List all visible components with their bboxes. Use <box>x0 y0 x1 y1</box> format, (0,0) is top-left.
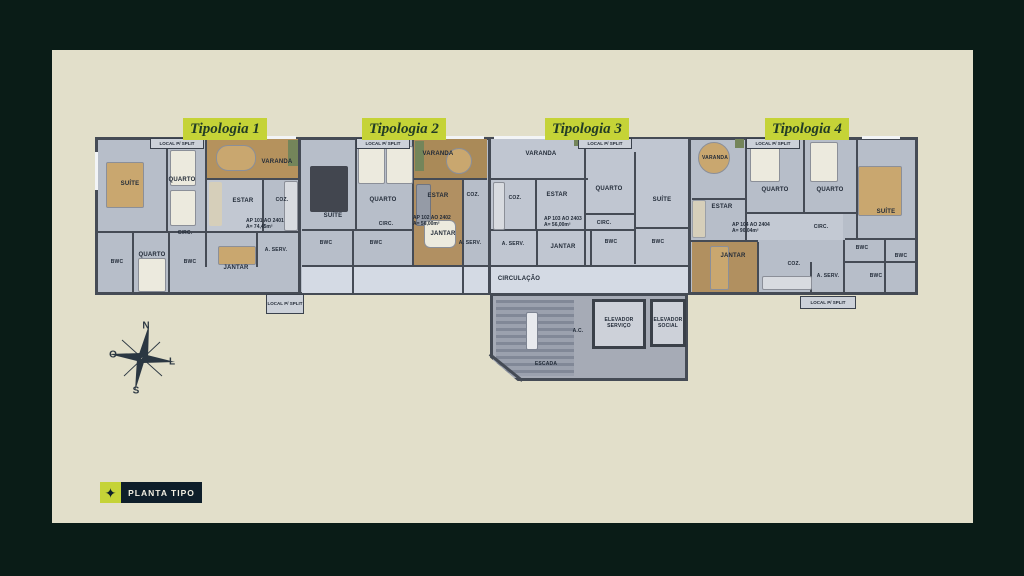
room-label-coz-t1: COZ. <box>276 197 289 203</box>
label-elevador-servico: ELEVADOR SERVIÇO <box>597 317 641 329</box>
wall <box>586 213 634 215</box>
wall <box>536 231 538 267</box>
furniture-bed <box>810 142 838 182</box>
room-label-bwc-t1b: BWC <box>184 259 197 265</box>
room-label-jantar-t1: JANTAR <box>223 265 248 271</box>
wall <box>843 240 845 294</box>
wall <box>168 233 170 293</box>
wall <box>757 242 759 295</box>
room-label-estar-t3: ESTAR <box>547 192 568 198</box>
room-label-varanda-t3: VARANDA <box>526 151 557 157</box>
room-label-jantar-t4: JANTAR <box>720 253 745 259</box>
room-label-quarto-t4b: QUARTO <box>816 187 843 193</box>
room-label-coz-t2: COZ. <box>467 192 480 198</box>
room-label-suite-t1: SUÍTE <box>121 181 140 187</box>
furniture-counter <box>284 181 298 231</box>
label-circulacao: CIRCULAÇÃO <box>498 276 540 282</box>
wall <box>636 227 690 229</box>
wall <box>634 152 636 264</box>
room-label-suite-t2: SUÍTE <box>324 213 343 219</box>
label-elevador-social: ELEVADOR SOCIAL <box>646 317 690 329</box>
wall <box>132 233 134 293</box>
wall <box>491 178 588 180</box>
room-label-aserv-t2: A. SERV. <box>459 240 481 246</box>
typology-2-label: Tipologia 2 <box>362 118 446 140</box>
compass-east: L <box>169 357 175 368</box>
room-label-estar-t4: ESTAR <box>712 204 733 210</box>
room-label-circ-t3: CIRC. <box>597 220 612 226</box>
badge-bar: PLANTA TIPO <box>121 482 202 503</box>
room-label-estar-t1: ESTAR <box>233 198 254 204</box>
furniture-bed <box>358 146 385 184</box>
compass-north: N <box>142 321 149 332</box>
corridor-wall <box>302 265 690 267</box>
furniture-bed <box>170 190 196 226</box>
split-box-t4-bottom: LOCAL P/ SPLIT <box>800 296 856 309</box>
room-label-quarto-t2: QUARTO <box>369 197 396 203</box>
room-label-varanda-t1: VARANDA <box>262 159 293 165</box>
wall <box>845 261 918 263</box>
window <box>95 152 98 190</box>
room-label-bwc-t4c: BWC <box>870 273 883 279</box>
room-label-bwc-t3b: BWC <box>652 239 665 245</box>
room-label-aserv-t4: A. SERV. <box>817 273 839 279</box>
unit-divider <box>688 137 691 295</box>
furniture-counter <box>762 276 812 290</box>
wall <box>584 139 586 265</box>
planter <box>735 139 744 148</box>
room-label-bwc-t3a: BWC <box>605 239 618 245</box>
room-label-varanda-t4: VARANDA <box>702 155 728 161</box>
wall <box>352 231 354 294</box>
wall <box>166 140 168 232</box>
wall <box>355 140 357 231</box>
wall <box>803 140 805 214</box>
wall <box>590 231 592 267</box>
split-box-t1-bottom: LOCAL P/ SPLIT <box>266 294 304 314</box>
apartment-area-t3: A= 56,00m² <box>544 222 582 228</box>
typology-1-label: Tipologia 1 <box>183 118 267 140</box>
room-label-quarto-t4a: QUARTO <box>761 187 788 193</box>
apartment-area-t2: A= 56,00m² <box>413 221 451 227</box>
room-label-coz-t4: COZ. <box>788 261 801 267</box>
furniture-counter <box>493 182 505 230</box>
wall <box>205 178 300 180</box>
room-label-bwc-t1a: BWC <box>111 259 124 265</box>
room-label-aserv-t3: A. SERV. <box>502 241 524 247</box>
room-label-suite-t4: SUÍTE <box>877 209 896 215</box>
room-label-circ-t1: CIRC. <box>178 230 193 236</box>
furniture-table <box>218 246 256 265</box>
wall <box>535 180 537 231</box>
compass-south: S <box>133 386 140 397</box>
furniture-bed <box>138 258 166 292</box>
room-label-bwc-t4b: BWC <box>895 253 908 259</box>
furniture-bed <box>386 146 413 184</box>
wall <box>691 240 758 242</box>
wall <box>414 178 487 180</box>
room-label-quarto-t1b: QUARTO <box>138 252 165 258</box>
unit-divider <box>298 137 301 295</box>
wall <box>491 229 634 231</box>
room-label-suite-t3: SUÍTE <box>653 197 672 203</box>
wall <box>747 212 857 214</box>
room-label-bwc-t2a: BWC <box>320 240 333 246</box>
wall <box>256 233 258 267</box>
room-label-bwc-t2b: BWC <box>370 240 383 246</box>
stair-rail <box>526 312 538 350</box>
wall <box>302 229 412 231</box>
wall <box>845 238 918 240</box>
label-escada: ESCADA <box>535 361 557 367</box>
room-label-quarto-t3: QUARTO <box>595 186 622 192</box>
apartment-tag-t3: AP 103 AO 2403 A= 56,00m² <box>544 216 582 229</box>
apartment-area-t1: A= 74,45m² <box>246 224 284 230</box>
room-label-jantar-t3: JANTAR <box>550 244 575 250</box>
compass-west: O <box>109 350 117 361</box>
typology-3-label: Tipologia 3 <box>545 118 629 140</box>
apartment-tag-t2: AP 102 AO 2402 A= 56,00m² <box>413 215 451 228</box>
furniture-sofa <box>209 182 222 226</box>
room-label-jantar-t2: JANTAR <box>430 231 455 237</box>
furniture-sofa <box>692 200 706 238</box>
typology-4-label: Tipologia 4 <box>765 118 849 140</box>
slide: Tipologia 1 Tipologia 2 Tipologia 3 Tipo… <box>0 0 1024 576</box>
wall <box>207 231 300 233</box>
wall <box>205 139 207 267</box>
apartment-tag-t1: AP 101 AO 2401 A= 74,45m² <box>246 218 284 231</box>
room-label-circ-t4: CIRC. <box>814 224 829 230</box>
window <box>862 136 900 139</box>
badge-label: PLANTA TIPO <box>128 488 195 498</box>
apartment-area-t4: A= 90,04m² <box>732 228 770 234</box>
apartment-tag-t4: AP 104 AO 2404 A= 90,04m² <box>732 222 770 235</box>
room-label-aserv-t1: A. SERV. <box>265 247 287 253</box>
furniture-table <box>216 145 256 171</box>
compass-rose-icon <box>108 324 176 392</box>
room-label-coz-t3: COZ. <box>509 195 522 201</box>
label-ac: A.C. <box>573 328 584 334</box>
room-label-circ-t2: CIRC. <box>379 221 394 227</box>
unit-divider <box>488 137 491 295</box>
wall <box>462 180 464 294</box>
room-label-bwc-t4a: BWC <box>856 245 869 251</box>
diamond-icon: ✦ <box>100 482 121 503</box>
room-label-varanda-t2: VARANDA <box>423 151 454 157</box>
wall <box>884 240 886 294</box>
corridor-floor <box>302 267 688 293</box>
furniture-bed <box>310 166 348 212</box>
room-label-quarto-t1a: QUARTO <box>168 177 195 183</box>
room-label-estar-t2: ESTAR <box>428 193 449 199</box>
